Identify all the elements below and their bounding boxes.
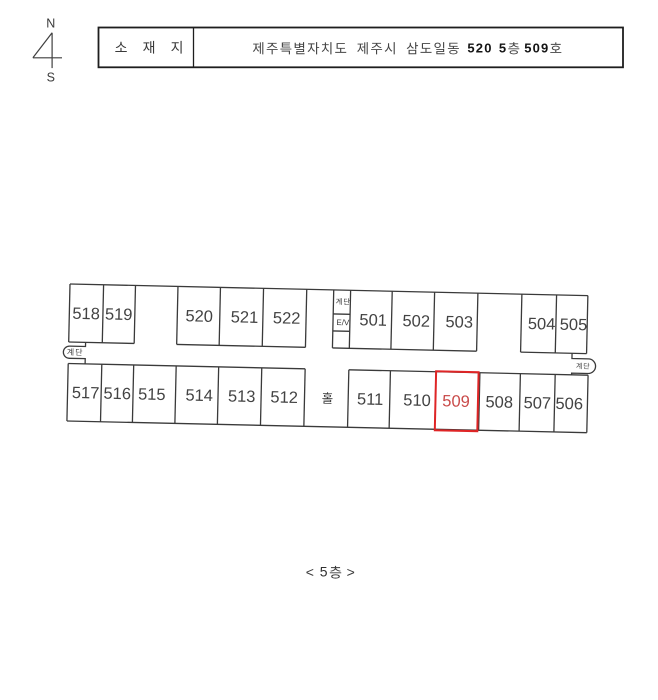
svg-text:520: 520 [467, 40, 492, 55]
svg-text:519: 519 [105, 305, 133, 324]
svg-text:>: > [347, 564, 355, 580]
svg-text:506: 506 [555, 395, 583, 414]
svg-text:5: 5 [320, 564, 328, 580]
svg-text:509: 509 [524, 40, 549, 55]
svg-text:511: 511 [357, 390, 384, 409]
svg-text:503: 503 [445, 313, 473, 332]
svg-text:<: < [306, 564, 314, 580]
svg-text:520: 520 [185, 307, 213, 326]
svg-text:517: 517 [72, 384, 100, 403]
svg-text:510: 510 [403, 391, 431, 410]
svg-text:514: 514 [185, 387, 213, 406]
svg-text:S: S [47, 71, 55, 85]
svg-text:501: 501 [359, 311, 387, 330]
svg-text:512: 512 [270, 388, 298, 407]
svg-text:502: 502 [402, 312, 430, 331]
svg-text:522: 522 [273, 309, 301, 328]
svg-text:518: 518 [72, 305, 100, 324]
svg-text:521: 521 [231, 308, 259, 327]
svg-text:E/V: E/V [336, 318, 350, 327]
svg-text:507: 507 [523, 394, 551, 413]
svg-text:515: 515 [138, 385, 166, 404]
svg-text:516: 516 [103, 385, 131, 404]
svg-text:N: N [46, 17, 55, 31]
svg-text:513: 513 [228, 387, 256, 406]
svg-text:5: 5 [499, 40, 506, 55]
svg-text:505: 505 [560, 316, 588, 335]
svg-text:504: 504 [528, 315, 556, 334]
svg-text:509: 509 [442, 392, 470, 411]
svg-text:508: 508 [485, 393, 513, 412]
